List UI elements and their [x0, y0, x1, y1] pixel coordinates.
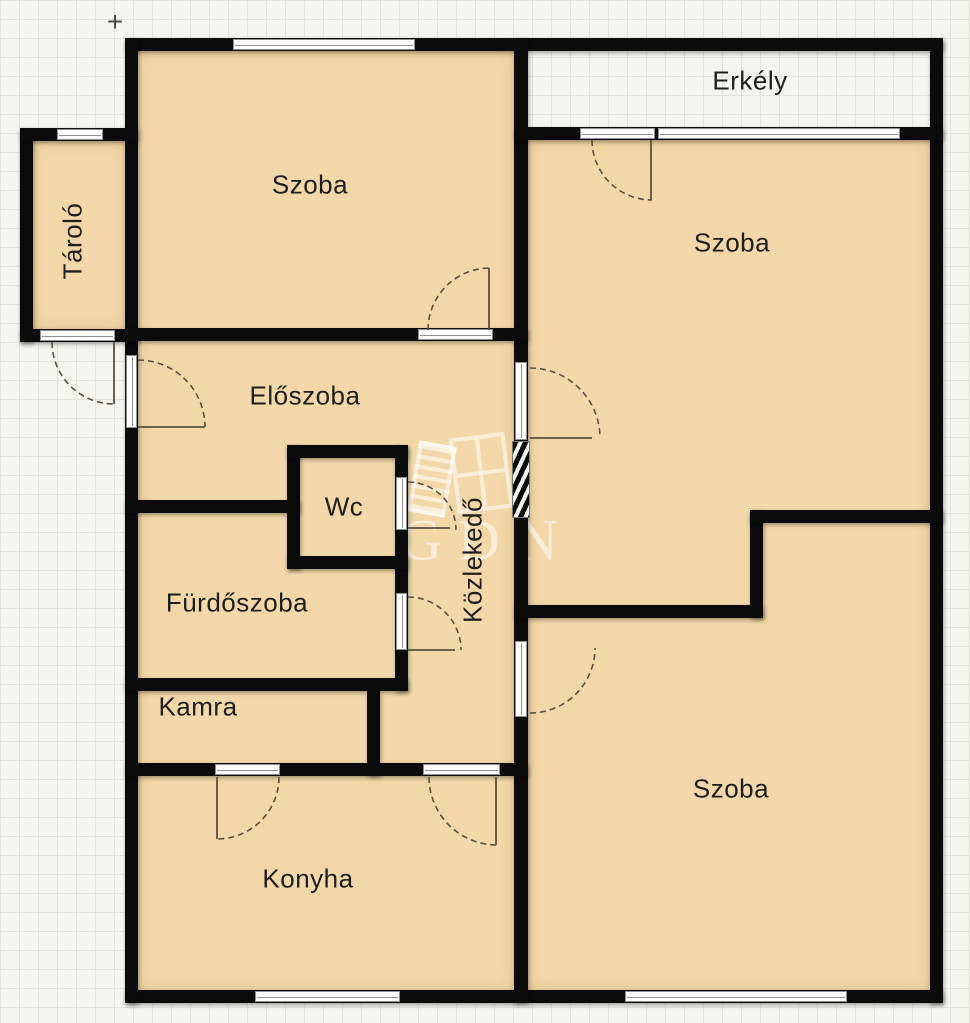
door-arc-szoba-tr	[530, 368, 600, 438]
door-arc-szoba-br	[530, 648, 595, 713]
door-arc-szoba-tl	[428, 268, 490, 330]
room-label-furdoszoba: Fürdőszoba	[166, 588, 308, 619]
door-arc-furdoszoba	[408, 597, 461, 650]
room-label-eloszoba: Előszoba	[250, 381, 361, 412]
room-label-kamra: Kamra	[158, 692, 237, 723]
floorplan-canvas: GDN	[0, 0, 970, 1023]
room-label-szoba-bottom-right: Szoba	[693, 774, 769, 805]
door-arc-entrance	[138, 360, 205, 427]
room-label-kozlekedo: Közlekedő	[458, 497, 489, 623]
door-arc-balcony	[592, 140, 652, 200]
room-label-erkely: Erkély	[712, 66, 787, 97]
room-label-tarolo: Tároló	[58, 203, 89, 280]
origin-plus-marker: +	[107, 6, 123, 38]
room-label-wc: Wc	[325, 492, 364, 523]
door-arc-kamra	[217, 777, 279, 839]
door-arc-wc	[408, 482, 456, 530]
door-arc-tarolo	[52, 342, 114, 404]
door-arc-konyha	[429, 777, 497, 845]
room-label-konyha: Konyha	[262, 864, 353, 895]
room-label-szoba-top-right: Szoba	[694, 228, 770, 259]
room-label-szoba-top-left: Szoba	[272, 170, 348, 201]
